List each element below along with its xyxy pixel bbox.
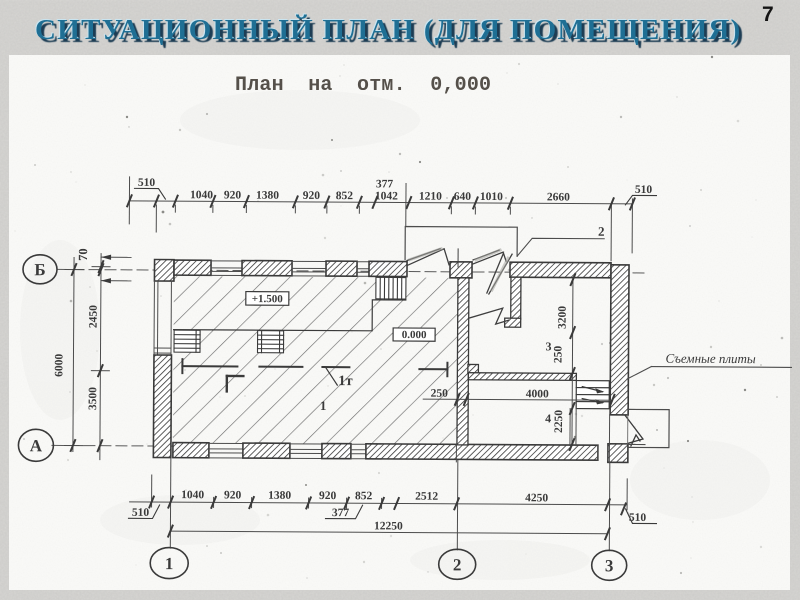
svg-text:0.000: 0.000	[402, 329, 427, 341]
svg-text:1010: 1010	[480, 191, 503, 203]
svg-text:3: 3	[605, 556, 614, 575]
svg-text:1380: 1380	[268, 490, 291, 502]
svg-text:250: 250	[431, 388, 449, 400]
svg-text:+1.500: +1.500	[252, 293, 284, 305]
svg-text:1т: 1т	[338, 373, 352, 389]
svg-text:1: 1	[165, 554, 174, 573]
svg-text:2450: 2450	[88, 305, 100, 328]
svg-text:70: 70	[76, 248, 90, 261]
svg-text:1042: 1042	[375, 190, 398, 202]
svg-text:920: 920	[303, 190, 321, 202]
svg-text:6000: 6000	[53, 354, 65, 377]
svg-text:920: 920	[319, 490, 337, 502]
svg-text:2: 2	[453, 555, 462, 574]
svg-text:3: 3	[545, 339, 551, 353]
svg-text:510: 510	[138, 177, 156, 189]
svg-text:640: 640	[454, 191, 472, 203]
svg-text:920: 920	[224, 189, 242, 201]
svg-text:4250: 4250	[525, 492, 548, 504]
svg-text:852: 852	[355, 490, 373, 502]
svg-text:510: 510	[635, 184, 653, 196]
svg-text:852: 852	[336, 190, 354, 202]
svg-text:510: 510	[629, 512, 647, 524]
svg-text:250: 250	[552, 346, 564, 364]
svg-text:2660: 2660	[547, 191, 570, 203]
svg-text:12250: 12250	[374, 520, 403, 532]
svg-text:4: 4	[545, 411, 551, 425]
svg-text:920: 920	[224, 489, 242, 501]
svg-text:3200: 3200	[557, 306, 569, 329]
svg-text:510: 510	[132, 507, 150, 519]
svg-text:377: 377	[332, 507, 350, 519]
svg-text:Съемные плиты: Съемные плиты	[665, 351, 756, 367]
svg-text:1380: 1380	[256, 190, 279, 202]
svg-text:1040: 1040	[190, 189, 213, 201]
svg-text:3500: 3500	[87, 387, 99, 410]
svg-text:Б: Б	[34, 260, 45, 279]
svg-text:1040: 1040	[181, 489, 204, 501]
svg-text:377: 377	[376, 178, 394, 190]
svg-text:1210: 1210	[419, 191, 442, 203]
svg-text:2: 2	[598, 224, 605, 239]
svg-text:А: А	[30, 436, 43, 455]
svg-text:2512: 2512	[415, 491, 438, 503]
svg-text:4000: 4000	[526, 388, 549, 400]
svg-text:1: 1	[320, 398, 327, 413]
svg-text:2250: 2250	[553, 410, 565, 433]
